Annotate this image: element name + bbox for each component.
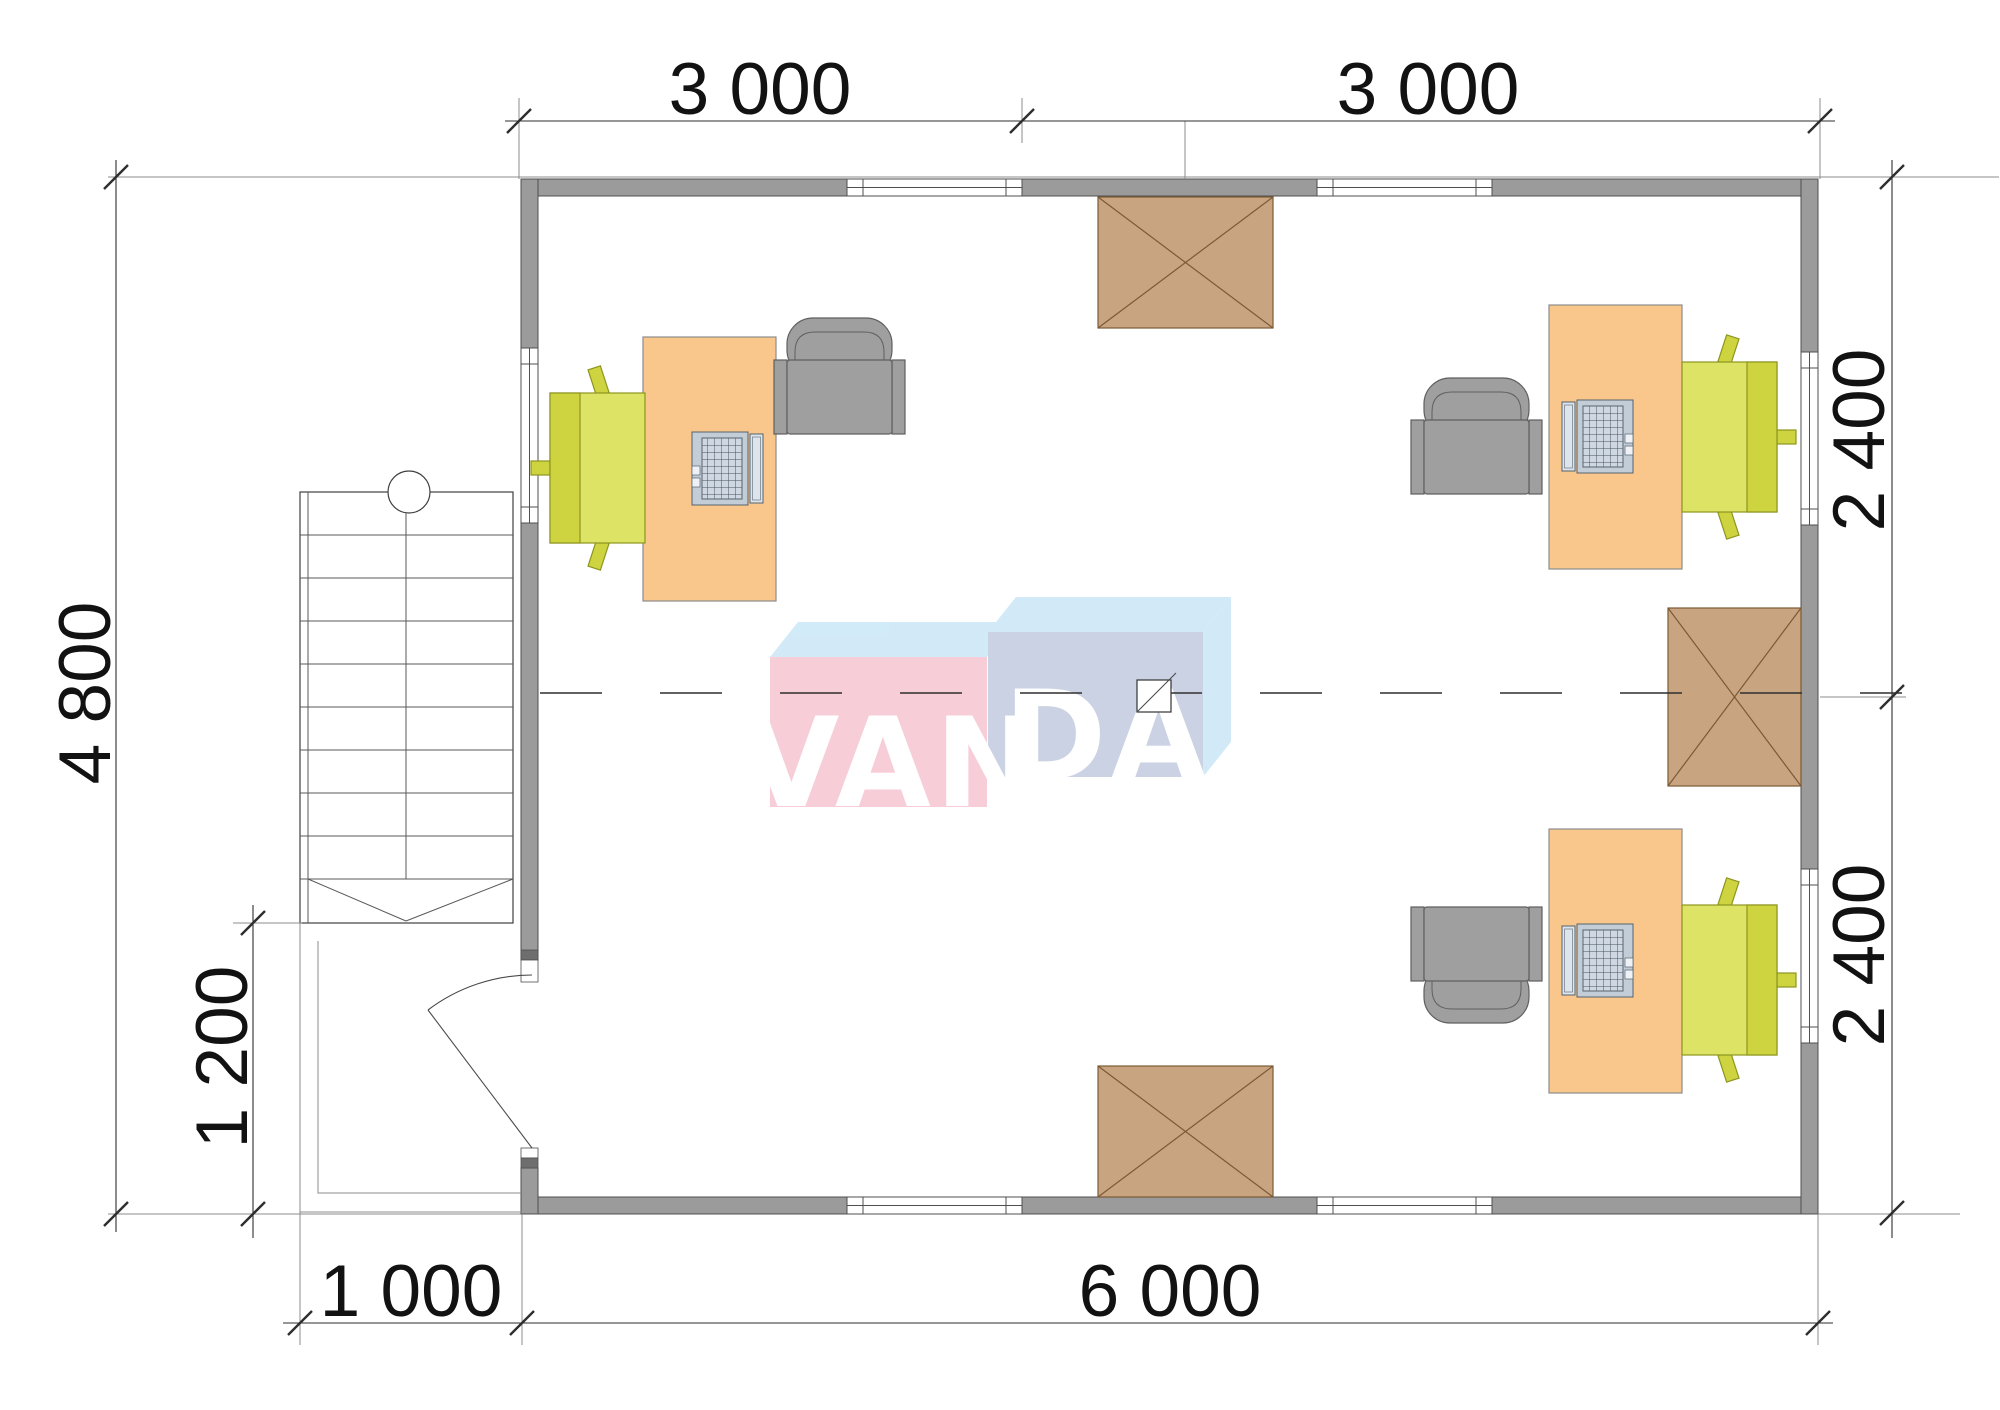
- wall-right: [1801, 179, 1818, 352]
- window-bottom-1: [847, 1197, 1022, 1214]
- window-left: [521, 348, 538, 523]
- wall-right: [1801, 525, 1818, 869]
- dim-label-bottom-right: 6 000: [1079, 1251, 1262, 1332]
- crossed-box-bottom: [1098, 1066, 1273, 1197]
- task-chair: [1682, 878, 1796, 1082]
- armchair: [1411, 378, 1542, 494]
- wall-left: [521, 1168, 538, 1214]
- window-top-1: [847, 179, 1022, 196]
- logo-cube-top-left: [770, 622, 1015, 657]
- wall-top: [1492, 179, 1818, 196]
- wall-top: [521, 179, 847, 196]
- wall-bottom: [1022, 1197, 1317, 1214]
- task-chair: [531, 366, 645, 570]
- floor-plan-canvas: VAN DA: [0, 0, 2000, 1410]
- door-jamb: [521, 1148, 538, 1158]
- porch-inner-line: [318, 941, 521, 1193]
- dim-label-bottom-left: 1 000: [320, 1251, 503, 1332]
- desk-with-laptop: [1549, 829, 1682, 1093]
- door-jamb-cap: [521, 1158, 538, 1168]
- logo-text-left: VAN: [743, 692, 1042, 836]
- crossed-box-top: [1098, 197, 1273, 328]
- door-jamb: [521, 960, 538, 982]
- staircase: [300, 471, 513, 923]
- porch-outline: [300, 923, 522, 1212]
- window-bottom-2: [1317, 1197, 1492, 1214]
- dim-label-porch: 1 200: [182, 966, 263, 1149]
- dim-label-right-lower: 2 400: [1819, 864, 1900, 1047]
- dim-label-right-upper: 2 400: [1819, 349, 1900, 532]
- logo-text-right: DA: [1004, 665, 1211, 809]
- window-right-1: [1801, 352, 1818, 525]
- window-top-2: [1317, 179, 1492, 196]
- workstation-top-left: [531, 318, 905, 601]
- wall-left: [521, 179, 538, 348]
- dim-label-top-left: 3 000: [669, 49, 852, 130]
- wall-bottom: [521, 1197, 847, 1214]
- wall-right: [1801, 1043, 1818, 1214]
- armchair: [1411, 907, 1542, 1023]
- wall-top: [1022, 179, 1317, 196]
- crossed-box-right: [1668, 608, 1801, 786]
- logo-cube-top-right: [988, 597, 1231, 632]
- door-leaf: [428, 1010, 532, 1148]
- workstation-right-bottom: [1411, 829, 1796, 1093]
- desk-with-laptop: [1549, 305, 1682, 569]
- window-right-2: [1801, 869, 1818, 1043]
- desk-with-laptop: [643, 337, 776, 601]
- floor-plan-page: VAN DA: [0, 0, 2000, 1410]
- armchair: [774, 318, 905, 434]
- task-chair: [1682, 335, 1796, 539]
- stair-newel-column: [388, 471, 430, 513]
- door-swing-arc: [428, 975, 532, 1010]
- porch-outer-line: [300, 923, 522, 1212]
- wall-left: [521, 523, 538, 960]
- door-jamb-cap: [521, 950, 538, 960]
- dim-label-top-right: 3 000: [1337, 49, 1520, 130]
- workstation-right-top: [1411, 305, 1796, 569]
- entrance-door: [428, 950, 538, 1168]
- vanda-watermark: VAN DA: [743, 597, 1231, 836]
- dim-label-left: 4 800: [45, 602, 126, 785]
- wall-bottom: [1492, 1197, 1818, 1214]
